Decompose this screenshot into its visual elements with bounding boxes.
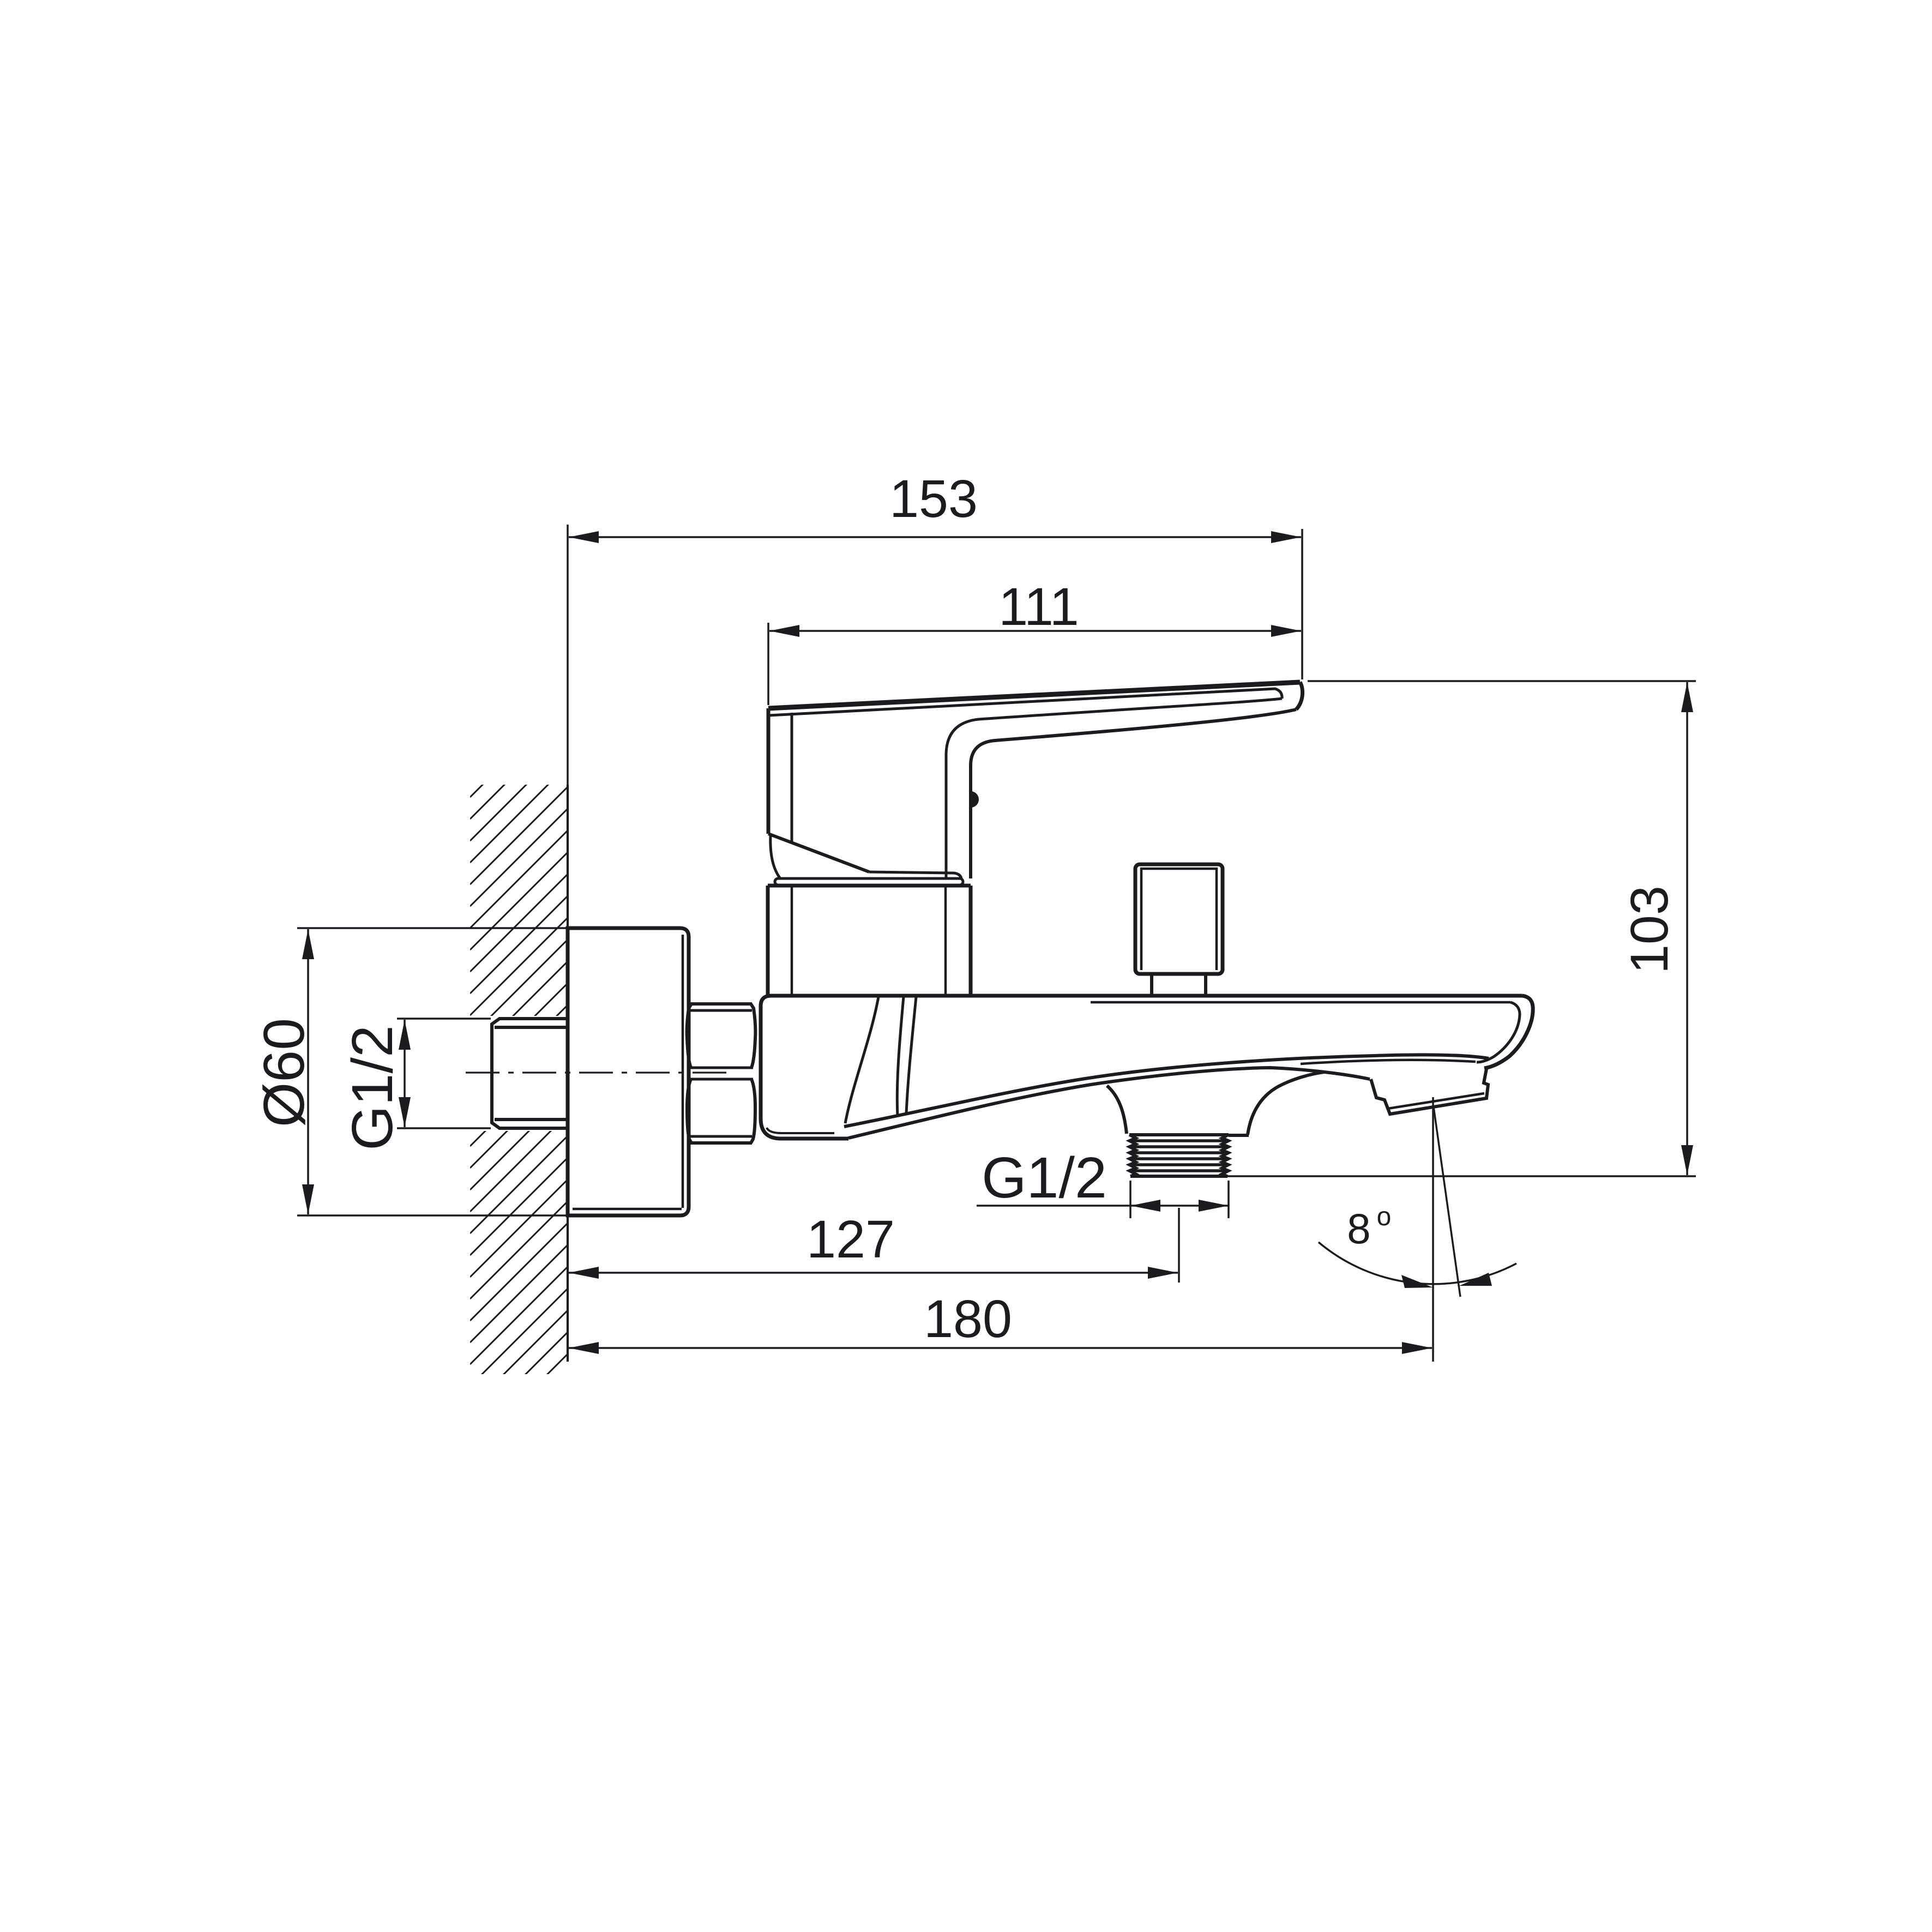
svg-text:111: 111 bbox=[998, 577, 1079, 636]
svg-text:G1/2: G1/2 bbox=[340, 1025, 405, 1151]
svg-text:o: o bbox=[1377, 1202, 1392, 1231]
svg-text:180: 180 bbox=[924, 1289, 1012, 1349]
svg-text:103: 103 bbox=[1620, 886, 1679, 974]
svg-text:127: 127 bbox=[806, 1209, 895, 1269]
svg-text:8: 8 bbox=[1347, 1205, 1370, 1253]
svg-text:G1/2: G1/2 bbox=[982, 1146, 1107, 1210]
svg-text:Ø60: Ø60 bbox=[252, 1018, 316, 1127]
svg-text:153: 153 bbox=[889, 469, 978, 528]
